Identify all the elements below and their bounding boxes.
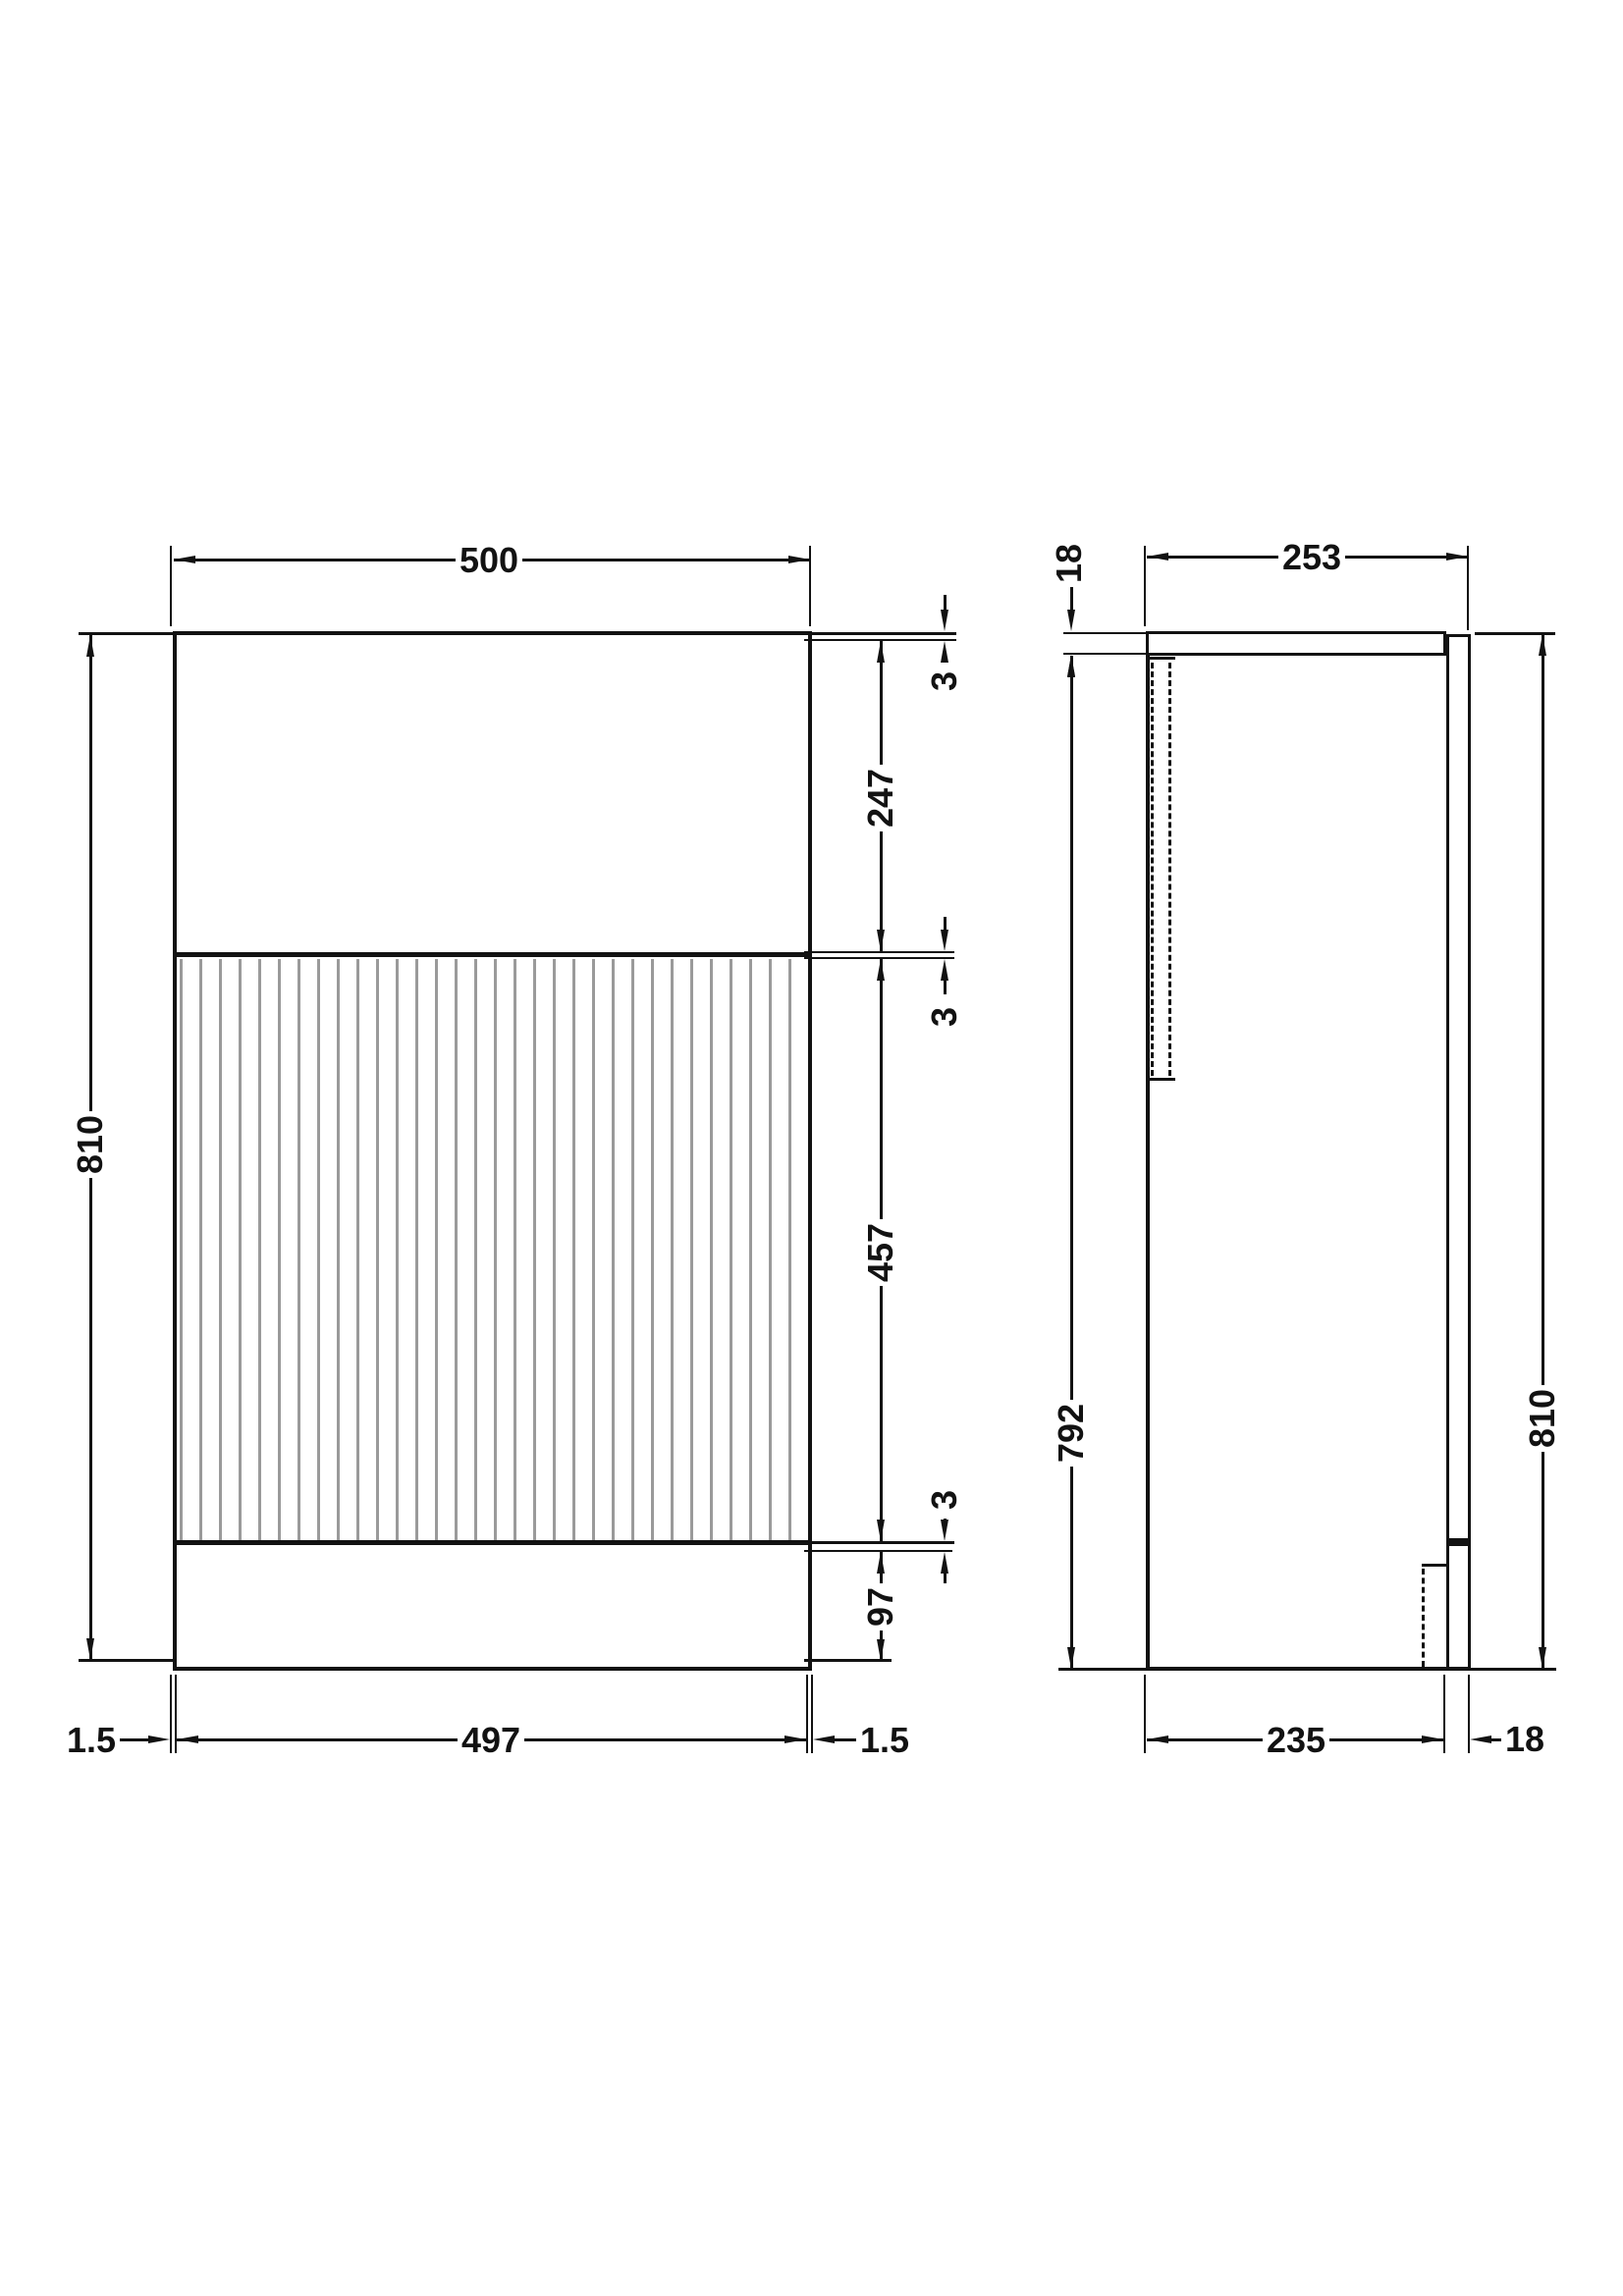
dim-label-gap-top: 3: [925, 667, 964, 695]
extension-line: [1063, 632, 1146, 634]
arrowhead: [1446, 553, 1468, 561]
fluted-door-texture: [180, 959, 806, 1540]
dim-label-carcass-depth: 235: [1263, 1721, 1329, 1760]
dim-label-edge-left: 1.5: [63, 1721, 120, 1760]
front-fluted-bottom-line: [177, 1540, 808, 1545]
arrowhead: [1067, 656, 1075, 677]
arrowhead: [784, 1735, 806, 1743]
dim-line-gap-middle: [944, 917, 947, 931]
arrowhead: [174, 556, 195, 563]
arrowhead: [941, 930, 948, 951]
dim-line-edge-left: [116, 1738, 150, 1741]
dim-label-back-panel: 18: [1501, 1720, 1548, 1759]
dim-label-gap-bottom: 3: [925, 1486, 964, 1514]
arrowhead: [1067, 610, 1075, 631]
side-door-hidden-edge: [1168, 663, 1171, 1076]
arrowhead: [1147, 1735, 1168, 1743]
side-door-bottom-cap: [1146, 1078, 1175, 1081]
arrowhead: [877, 1639, 885, 1661]
arrowhead: [941, 1552, 948, 1574]
arrowhead: [1539, 634, 1546, 656]
arrowhead: [941, 610, 948, 631]
extension-line: [1063, 653, 1146, 655]
arrowhead: [877, 1520, 885, 1541]
dim-label-side-overall-height: 810: [1523, 1385, 1562, 1452]
dim-line-carcass-height: [1070, 656, 1073, 1669]
arrowhead: [877, 959, 885, 981]
arrowhead: [941, 641, 948, 663]
dim-label-overall-height: 810: [71, 1111, 110, 1178]
dim-label-overall-width: 500: [456, 541, 522, 580]
arrowhead: [788, 556, 810, 563]
dim-label-upper-panel: 247: [861, 765, 900, 831]
dim-line-back-panel: [1491, 1738, 1501, 1741]
extension-line: [1144, 546, 1146, 626]
side-door-hidden-edge: [1151, 663, 1154, 1076]
dim-line-worktop-thickness: [1070, 586, 1073, 610]
side-front-edge: [1146, 654, 1150, 1671]
arrowhead: [86, 635, 94, 657]
dim-line-gap-bottom-tail: [944, 1574, 947, 1583]
extension-line: [170, 1675, 172, 1753]
technical-drawing-canvas: 500 810 247 457 97 3 3 3 1.5 497: [0, 0, 1623, 2296]
arrowhead: [1067, 1647, 1075, 1669]
extension-line: [170, 546, 172, 626]
arrowhead: [877, 930, 885, 951]
arrowhead: [1470, 1735, 1491, 1743]
extension-line: [804, 632, 956, 635]
side-back-panel-joint: [1446, 1538, 1471, 1546]
arrowhead: [941, 959, 948, 981]
arrowhead: [148, 1735, 170, 1743]
dim-label-gap-middle: 3: [925, 1003, 964, 1031]
dim-line-side-overall-height: [1542, 634, 1544, 1669]
dim-label-plinth: 97: [861, 1583, 900, 1630]
dim-label-fluted-door: 457: [861, 1219, 900, 1286]
dim-line-gap-top: [944, 595, 947, 611]
arrowhead: [941, 1520, 948, 1541]
extension-line: [1443, 1675, 1445, 1753]
dim-label-carcass-height: 792: [1052, 1400, 1091, 1467]
side-foot-top-cap: [1422, 1564, 1446, 1567]
arrowhead: [1539, 1647, 1546, 1669]
side-bottom-edge: [1146, 1667, 1471, 1671]
arrowhead: [1422, 1735, 1443, 1743]
dim-line-gap-middle-tail: [944, 981, 947, 994]
side-worktop: [1146, 631, 1446, 656]
arrowhead: [813, 1735, 835, 1743]
extension-line: [1144, 1675, 1146, 1753]
arrowhead: [86, 1638, 94, 1660]
side-foot-hidden-edge: [1422, 1569, 1425, 1667]
dim-label-worktop-thickness: 18: [1050, 540, 1089, 587]
side-door-top-cap: [1146, 657, 1175, 660]
arrowhead: [1147, 553, 1168, 561]
arrowhead: [177, 1735, 198, 1743]
side-back-panel: [1446, 634, 1471, 1671]
extension-line: [804, 1541, 954, 1544]
front-fluted-top-line: [177, 952, 808, 957]
arrowhead: [877, 1552, 885, 1574]
dim-label-edge-right: 1.5: [856, 1721, 913, 1760]
arrowhead: [877, 641, 885, 663]
dim-label-door-width: 497: [458, 1721, 524, 1760]
extension-line: [806, 1675, 808, 1753]
dim-label-overall-depth: 253: [1278, 538, 1345, 577]
